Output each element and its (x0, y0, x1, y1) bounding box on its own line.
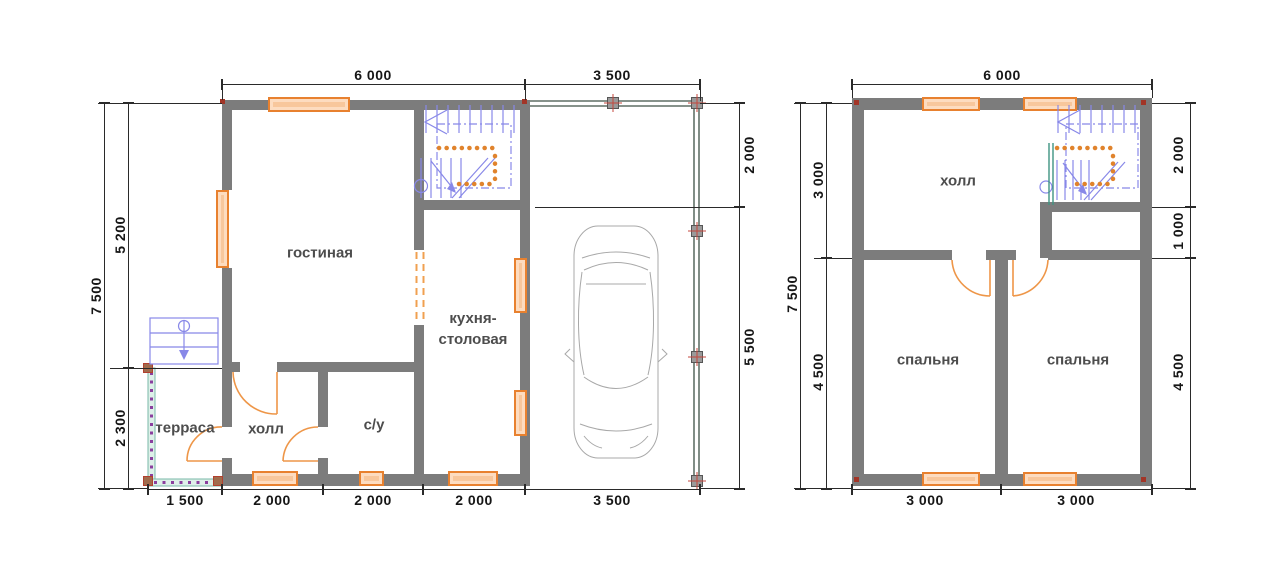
dimension-line (852, 84, 1152, 85)
dimension-line (148, 489, 700, 490)
dim-label: 2 000 (455, 492, 493, 508)
dimension-line (800, 103, 801, 489)
dimension-extension (525, 85, 526, 100)
staircase-first-floor (415, 105, 515, 198)
dimension-line (1190, 103, 1191, 489)
dimension-extension (1152, 85, 1153, 98)
dimension-tick (524, 484, 526, 495)
staircase-second-floor (1040, 105, 1138, 200)
dimension-extension (222, 85, 223, 100)
dimension-line (826, 103, 827, 489)
dimension-tick (1000, 484, 1002, 495)
dim-label: 3 000 (1057, 492, 1095, 508)
dim-label: 2 000 (741, 136, 757, 174)
dimension-extension (852, 85, 853, 98)
dim-label: 7 500 (88, 277, 104, 315)
dimension-extension (535, 207, 745, 208)
room-label-living-room: гостиная (287, 243, 353, 264)
dim-label: 7 500 (784, 275, 800, 313)
dimension-extension (1152, 103, 1196, 104)
dim-label: 3 500 (593, 67, 631, 83)
dim-label: 5 500 (741, 328, 757, 366)
dim-label: 2 300 (112, 409, 128, 447)
room-label-terrace: терраса (155, 418, 214, 439)
dim-label: 1 500 (166, 492, 204, 508)
dimension-extension (1152, 488, 1196, 489)
room-label-hall-1: холл (248, 419, 284, 440)
dim-label: 3 500 (593, 492, 631, 508)
dimension-tick (699, 484, 701, 495)
dim-label: 6 000 (354, 67, 392, 83)
dim-label: 4 500 (810, 353, 826, 391)
carport-frame (530, 101, 700, 486)
room-label-wc: с/у (364, 415, 385, 436)
dimension-tick (322, 484, 324, 495)
door-wc (283, 427, 318, 461)
dimension-line (852, 489, 1152, 490)
dim-label: 2 000 (253, 492, 291, 508)
dimension-extension (98, 103, 222, 104)
dimension-line (128, 103, 129, 489)
dimension-extension (814, 258, 852, 259)
dimension-tick (851, 484, 853, 495)
dim-label: 4 500 (1170, 353, 1186, 391)
dimension-extension (1152, 207, 1196, 208)
dimension-tick (221, 484, 223, 495)
car (565, 226, 667, 458)
dimension-tick (422, 484, 424, 495)
door-bedroom-right (1013, 260, 1048, 296)
floor-plan-canvas: 6 000 3 500 1 500 2 000 2 000 2 000 3 50… (0, 0, 1280, 582)
dimension-extension (110, 368, 222, 369)
entrance-steps (150, 318, 218, 364)
kitchen-opening-dashed (417, 252, 424, 323)
dim-label: 1 000 (1170, 212, 1186, 250)
room-label-bedroom-right: спальня (1047, 350, 1109, 371)
stair-rail (1049, 143, 1053, 205)
dim-label: 3 000 (906, 492, 944, 508)
dimension-extension (794, 488, 852, 489)
dimension-extension (794, 103, 852, 104)
dim-label: 3 000 (810, 161, 826, 199)
dim-label: 2 000 (354, 492, 392, 508)
dimension-extension (1152, 258, 1196, 259)
room-label-bedroom-left: спальня (897, 350, 959, 371)
dim-label: 2 000 (1170, 136, 1186, 174)
dimension-extension (700, 103, 745, 104)
room-label-hall-2: холл (940, 171, 976, 192)
dimension-tick (147, 484, 149, 495)
door-hall (233, 372, 277, 414)
dimension-line (739, 103, 740, 489)
dim-label: 6 000 (983, 67, 1021, 83)
dimension-extension (98, 488, 148, 489)
dimension-line (222, 84, 700, 85)
dimension-extension (700, 85, 701, 101)
dimension-extension (700, 488, 745, 489)
dimension-tick (1151, 484, 1153, 495)
dim-label: 5 200 (112, 216, 128, 254)
room-label-kitchen-dining: кухня- столовая (439, 308, 508, 350)
door-bedroom-left (952, 260, 990, 296)
dimension-line (104, 103, 105, 489)
